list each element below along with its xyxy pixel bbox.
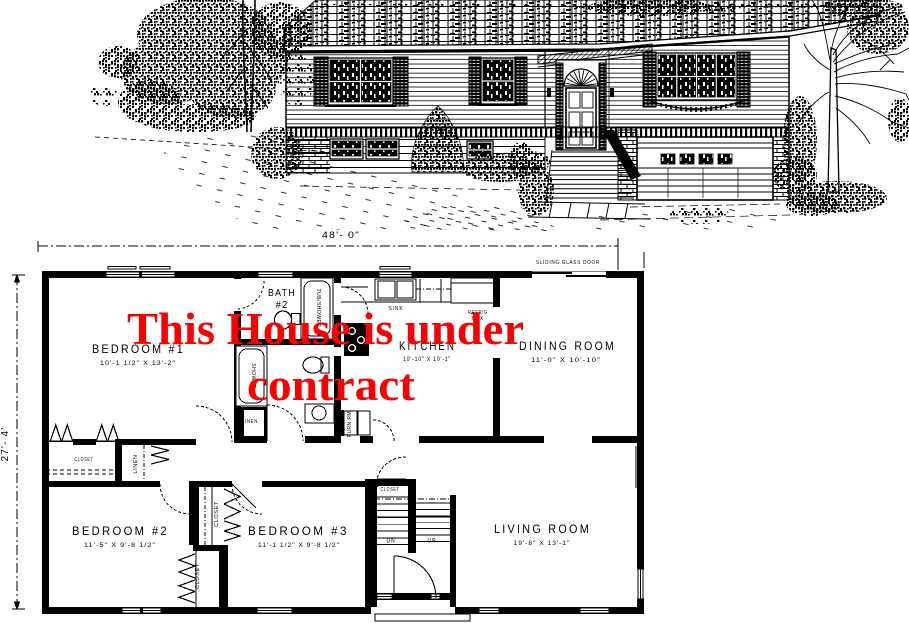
svg-text:48'- 0": 48'- 0" xyxy=(322,230,360,240)
svg-text:27'- 4': 27'- 4' xyxy=(0,426,11,461)
svg-text:11'-0" X 10'-10": 11'-0" X 10'-10" xyxy=(531,357,601,364)
svg-text:10'-1 1/2" X 13'-2": 10'-1 1/2" X 13'-2" xyxy=(100,360,176,367)
svg-text:BEDROOM #2: BEDROOM #2 xyxy=(72,526,169,538)
svg-text:11'-1 1/2" X 9'-8 1/2": 11'-1 1/2" X 9'-8 1/2" xyxy=(258,542,340,549)
svg-text:CLOSET: CLOSET xyxy=(381,487,400,493)
svg-text:CLOSET: CLOSET xyxy=(195,563,201,589)
svg-text:DINING ROOM: DINING ROOM xyxy=(519,341,616,353)
svg-text:UP: UP xyxy=(428,539,437,545)
svg-text:CLOSET: CLOSET xyxy=(214,501,220,527)
svg-text:LINEN: LINEN xyxy=(242,419,258,425)
svg-text:BEDROOM #3: BEDROOM #3 xyxy=(248,526,349,538)
svg-text:SLIDING GLASS DOOR: SLIDING GLASS DOOR xyxy=(536,260,600,266)
svg-text:11'-5" X 9'-8 1/2": 11'-5" X 9'-8 1/2" xyxy=(84,542,156,549)
svg-text:LIVING ROOM: LIVING ROOM xyxy=(494,524,591,536)
svg-text:This House is under: This House is under xyxy=(127,303,524,354)
svg-text:LINEN: LINEN xyxy=(133,454,139,473)
svg-text:BATH: BATH xyxy=(268,287,296,299)
svg-text:CLOSET: CLOSET xyxy=(75,457,94,463)
svg-text:DN: DN xyxy=(387,539,396,545)
svg-text:19'-8" X 13'-1": 19'-8" X 13'-1" xyxy=(514,540,571,547)
svg-text:FURN RM: FURN RM xyxy=(347,411,353,437)
svg-text:contract: contract xyxy=(247,359,416,410)
